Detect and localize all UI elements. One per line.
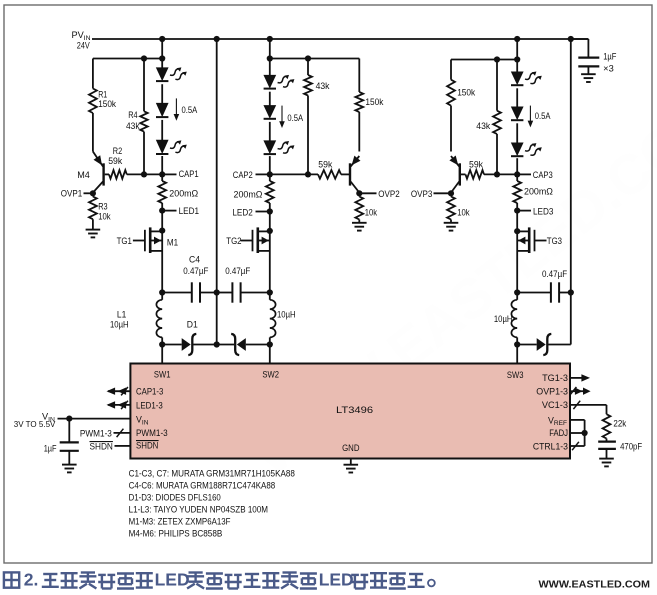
svg-text:SW3: SW3 [507,370,524,380]
svg-text:10µH: 10µH [110,320,129,330]
svg-text:C4: C4 [189,255,200,265]
svg-text:150k: 150k [457,87,475,97]
svg-text:CAP3: CAP3 [533,170,553,180]
svg-text:D1: D1 [187,320,198,330]
svg-text:R4: R4 [128,110,137,120]
svg-text:WWW.EASTLED.COM: WWW.EASTLED.COM [539,580,651,591]
svg-text:0.47µF: 0.47µF [542,269,567,279]
svg-text:200mΩ: 200mΩ [234,189,263,199]
svg-text:59k: 59k [108,156,122,166]
svg-text:1µF: 1µF [603,52,617,62]
svg-text:D1-D3: DIODES DFLS160: D1-D3: DIODES DFLS160 [129,492,221,502]
svg-text:OVP3: OVP3 [411,189,432,199]
svg-text:10µH: 10µH [277,310,296,320]
svg-text:CAP1-3: CAP1-3 [136,387,163,397]
svg-text:LED1-3: LED1-3 [136,401,163,411]
svg-text:22k: 22k [613,419,626,429]
svg-text:PWM1-3: PWM1-3 [80,428,112,438]
svg-text:FADJ: FADJ [549,428,568,438]
svg-text:SHDN: SHDN [90,442,113,452]
svg-text:LT3496: LT3496 [336,404,373,415]
svg-text:0.5A: 0.5A [182,105,198,115]
svg-text:LED2: LED2 [232,207,252,217]
svg-text:SW1: SW1 [154,370,171,380]
svg-text:R2: R2 [113,146,122,156]
svg-text:150k: 150k [98,99,116,109]
svg-text:TG1: TG1 [117,236,132,246]
svg-text:24V: 24V [77,40,91,50]
svg-text:L1: L1 [117,310,126,320]
svg-text:C1-C3, C7: MURATA GRM31MR71H10: C1-C3, C7: MURATA GRM31MR71H105KA88 [129,468,295,478]
svg-text:0.47µF: 0.47µF [183,266,208,276]
svg-text:VC1-3: VC1-3 [542,400,568,410]
svg-text:M4-M6: PHILIPS BC858B: M4-M6: PHILIPS BC858B [129,528,223,538]
svg-text:LED3: LED3 [533,207,553,217]
svg-text:C4-C6: MURATA GRM188R71C474KA8: C4-C6: MURATA GRM188R71C474KA88 [129,480,276,490]
svg-text:SHDN: SHDN [136,441,158,451]
svg-text:470pF: 470pF [620,442,642,452]
svg-text:0.47µF: 0.47µF [225,266,250,276]
svg-text:LED1: LED1 [179,206,199,216]
svg-text:TG1-3: TG1-3 [542,373,568,383]
svg-text:×3: ×3 [603,63,614,73]
svg-text:200mΩ: 200mΩ [524,187,553,197]
svg-text:3V TO 5.5V: 3V TO 5.5V [14,419,56,429]
svg-text:43k: 43k [476,121,490,131]
svg-text:10k: 10k [365,207,378,217]
svg-text:150k: 150k [365,97,383,107]
svg-text:LED: LED [155,570,190,590]
svg-text:TG3: TG3 [547,236,562,246]
svg-text:CAP2: CAP2 [233,170,253,180]
svg-text:M4: M4 [77,170,90,180]
svg-text:OVP1: OVP1 [61,188,82,198]
svg-text:1µF: 1µF [44,443,57,453]
svg-text:2.: 2. [24,570,39,590]
svg-text:CTRL1-3: CTRL1-3 [533,442,568,452]
svg-text:10µH: 10µH [494,314,513,324]
svg-text:GND: GND [342,443,359,453]
svg-text:L1-L3: TAIYO YUDEN NP04SZB 100: L1-L3: TAIYO YUDEN NP04SZB 100M [129,504,268,514]
svg-text:OVP1-3: OVP1-3 [536,387,568,397]
svg-text:10k: 10k [98,212,111,222]
svg-text:200mΩ: 200mΩ [169,188,198,198]
svg-text:10k: 10k [457,207,470,217]
svg-text:OVP2: OVP2 [378,189,399,199]
svg-text:R1: R1 [98,89,107,99]
svg-text:0.5A: 0.5A [535,111,551,121]
svg-text:M1-M3: ZETEX ZXMP6A13F: M1-M3: ZETEX ZXMP6A13F [129,516,231,526]
svg-text:59k: 59k [318,160,332,170]
svg-text:59k: 59k [469,160,483,170]
svg-text:M1: M1 [167,238,178,248]
svg-text:SW2: SW2 [262,370,279,380]
svg-text:PWM1-3: PWM1-3 [136,428,168,438]
svg-text:CAP1: CAP1 [179,169,199,179]
svg-text:43k: 43k [316,81,330,91]
svg-text:43k: 43k [126,121,140,131]
svg-text:TG2: TG2 [226,236,241,246]
svg-text:LED: LED [319,570,354,590]
svg-text:R3: R3 [98,201,107,211]
svg-text:0.5A: 0.5A [287,113,303,123]
